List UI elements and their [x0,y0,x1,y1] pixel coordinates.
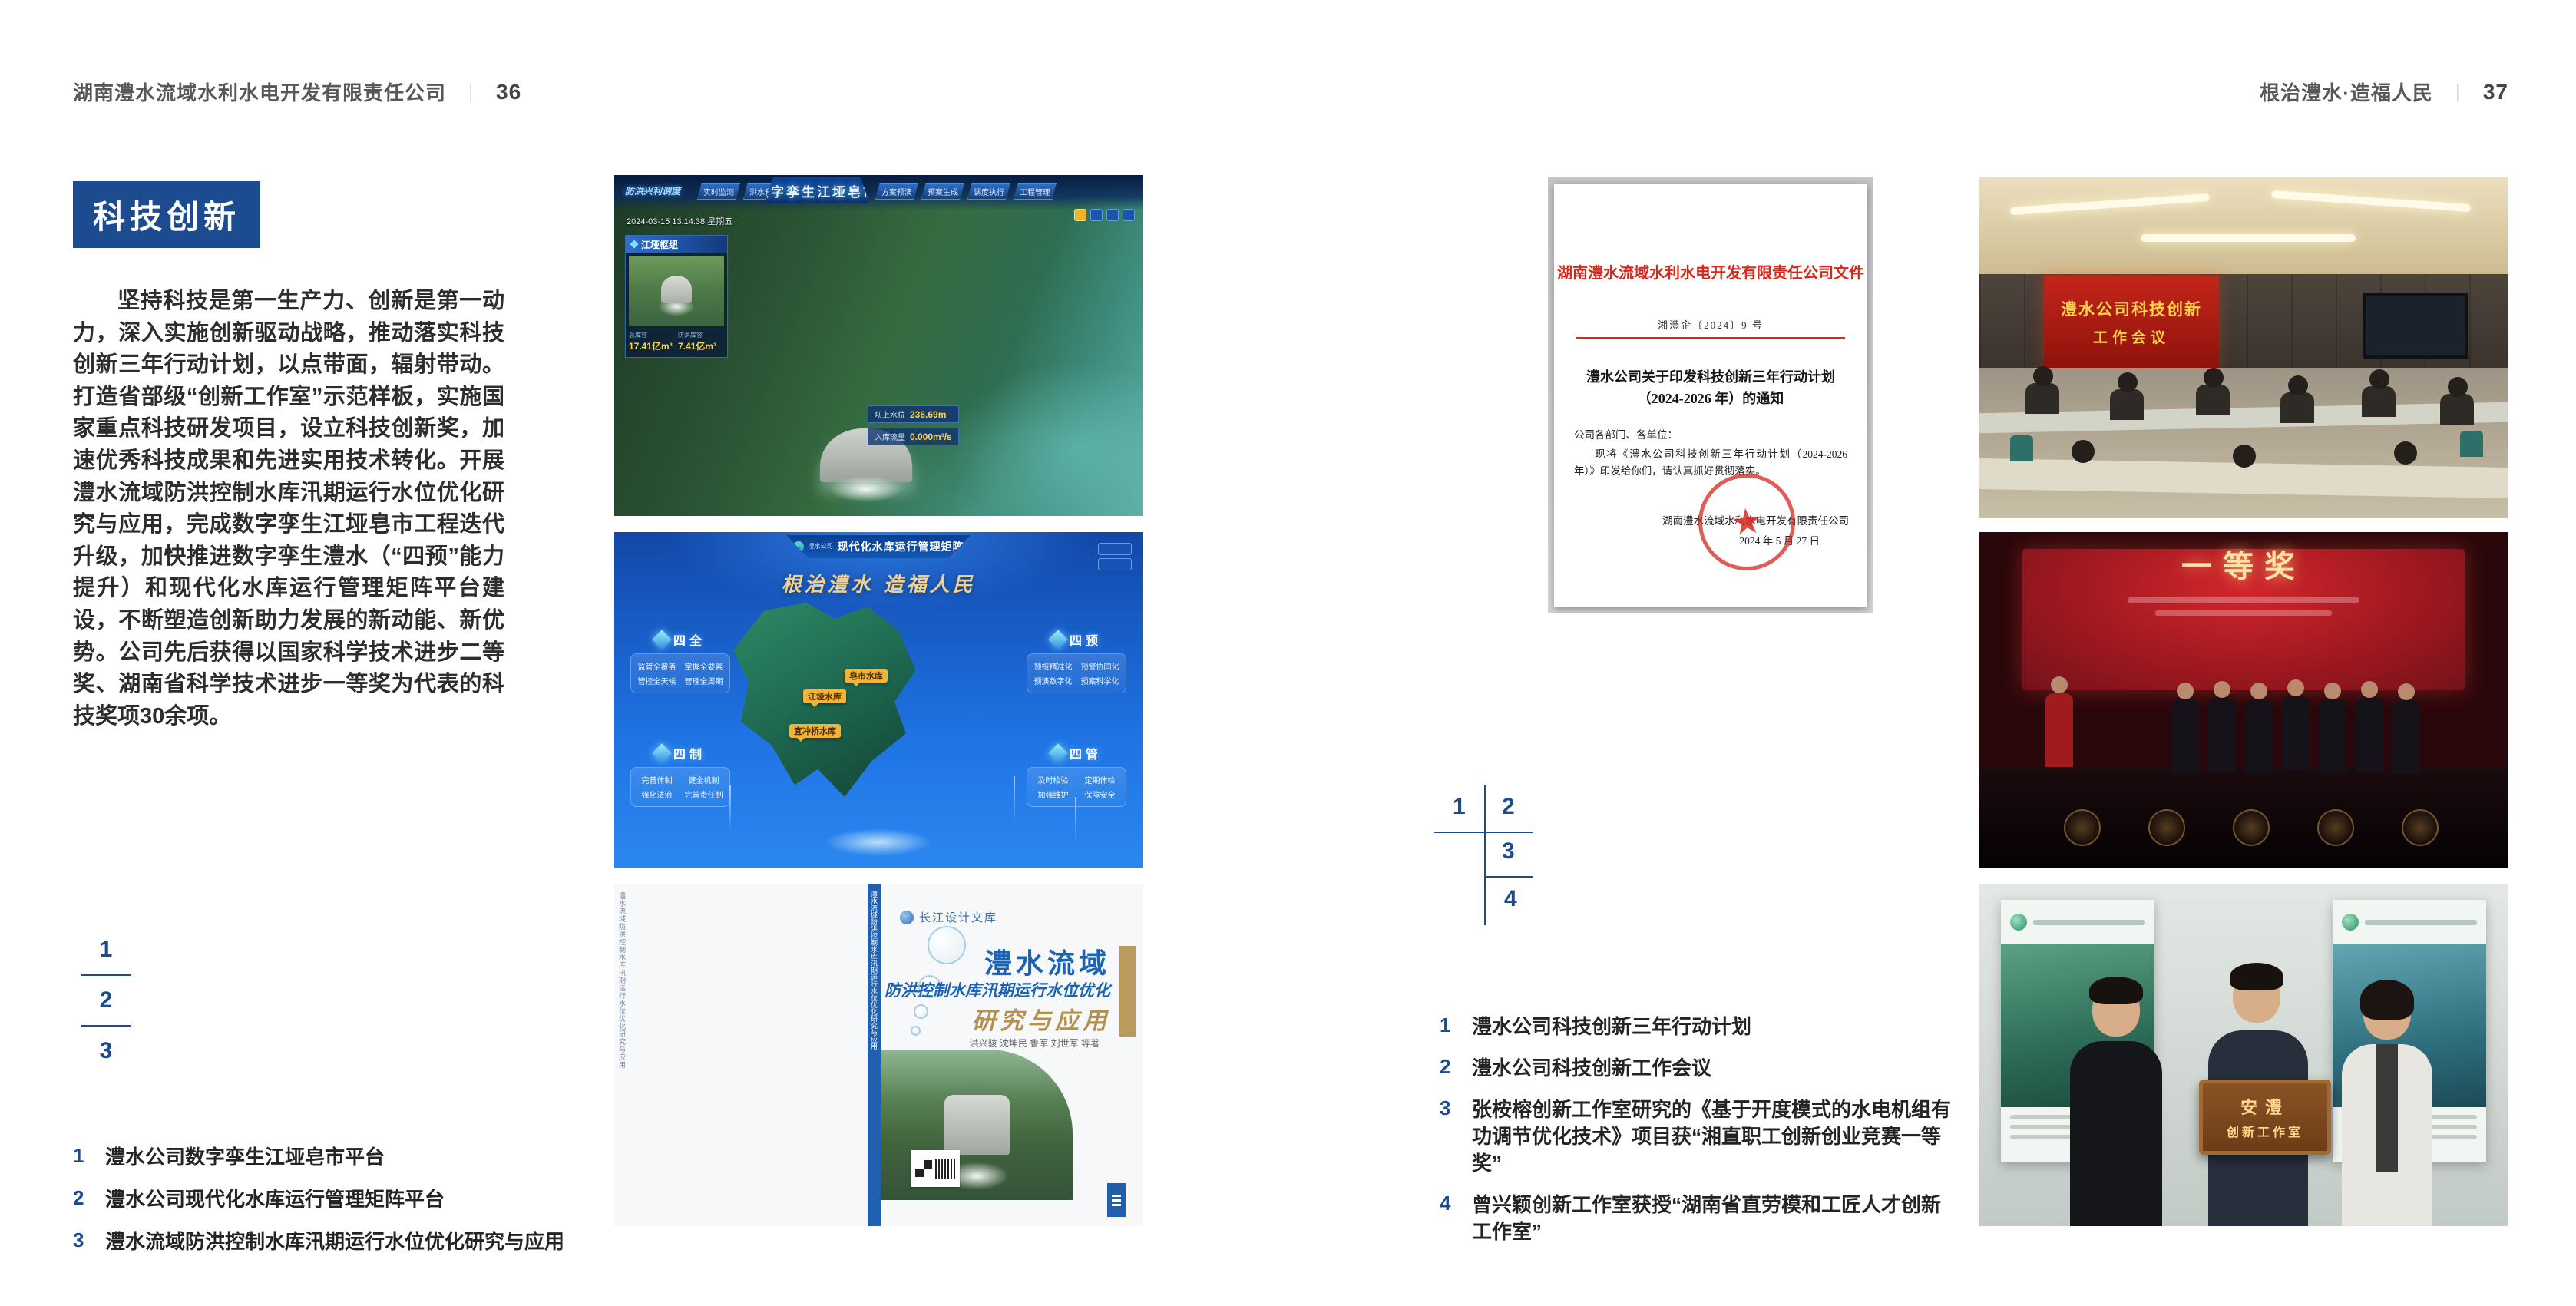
figure-index-left: 1 2 3 [73,937,139,1064]
stat-label: 防洪库容 [678,331,724,339]
panel-item: 定期体检 [1077,774,1123,785]
star-icon: ★ [1729,503,1764,541]
attendee-silhouette [2025,383,2059,414]
panel-item: 掌握全要素 [681,660,726,672]
panel-item: 预演数字化 [1030,675,1076,686]
panel-item: 保障安全 [1077,789,1123,800]
attendee-head [2448,377,2468,397]
motto: 根治澧水·造福人民 [2260,78,2433,106]
index-divider-line [81,1025,131,1027]
person-head [2363,986,2411,1040]
chip-value: 236.69m [910,409,946,420]
figure-index-number: 3 [1502,838,1515,865]
barcode [911,1150,960,1187]
dam-thumbnail [629,256,724,326]
caption-text: 澧水公司科技创新工作会议 [1472,1055,1953,1082]
document-body: 现将《澧水公司科技创新三年行动计划（2024-2026 年）》印发给你们，请认真… [1574,446,1847,480]
backdrop-text-bar [2128,597,2359,603]
figure-index-right: 1 2 3 4 [1434,785,1536,927]
dashboard-title-plate: 数字孪生江垭皂市 [765,177,869,203]
matrix-panel-siquan: 四全 监管全覆盖 掌握全要素 管控全天候 管理全周期 [634,630,726,693]
stat-chip: 入库流量 0.000m³/s [868,428,959,445]
awardee-silhouette [2208,698,2236,772]
diamond-icon [630,240,638,248]
caption-number: 4 [1440,1192,1472,1245]
locate-icon [1106,209,1119,221]
stat-cell: 防洪库容 7.41亿m³ [678,331,724,352]
dashboard-tab: 调度执行 [967,183,1010,200]
figure-matrix-platform: 江垭水库 皂市水库 宜冲桥水库 澧水公司 现代化水库运行管理矩阵 根治澧水 造福… [614,532,1143,868]
dam-cover-photo [881,1050,1073,1200]
spine-title: 澧水流域防洪控制水库汛期运行水位优化研究与应用 [869,891,879,1213]
dam-wall-shape [661,276,692,303]
document-letterhead: 湖南澧水流域水利水电开发有限责任公司文件 [1554,260,1867,283]
page-header-right: 根治澧水·造福人民 ｜ 37 [2260,78,2508,106]
dashboard-title: 数字孪生江垭皂市 [756,181,878,200]
figure-index-number: 2 [100,987,113,1013]
panel-item: 预报精准化 [1030,660,1076,672]
notice-title-line1: 澧水公司关于印发科技创新三年行动计划 [1554,366,1867,386]
page-number-left: 36 [496,80,521,104]
figure-award-ceremony-photo: 一等奖 [1979,532,2508,868]
body-paragraph: 坚持科技是第一生产力、创新是第一动力，深入实施创新驱动战略，推动落实科技创新三年… [73,286,504,732]
figure-index-number: 4 [1504,886,1517,912]
caption-item: 2 澧水公司科技创新工作会议 [1440,1055,1953,1082]
document-page: 湖南澧水流域水利水电开发有限责任公司文件 湘澧企〔2024〕9 号 澧水公司关于… [1554,184,1867,607]
qr-code-icon [915,1160,932,1177]
dashboard-timestamp: 2024-03-15 13:14:38 星期五 [627,215,732,227]
awardee-silhouette [2356,698,2383,772]
stat-label: 总库容 [629,331,675,339]
stage-light [2233,809,2270,846]
screen-text-line1: 澧水公司科技创新 [2061,297,2202,320]
screen-text-line2: 工作会议 [2093,326,2170,347]
notice-title-line2: （2024-2026 年）的通知 [1554,388,1867,408]
book-title-region: 澧水流域 [883,941,1110,981]
caption-item: 2 澧水公司现代化水库运行管理矩阵平台 [73,1186,568,1213]
chip-label: 入库流量 [875,431,905,442]
publisher-logo-icon [900,911,914,924]
ripple-glow [825,828,932,856]
red-rule [1576,337,1846,339]
header-divider: ｜ [2449,78,2468,105]
library-logo-row: 长江设计文库 [900,909,997,925]
caption-text: 澧水流域防洪控制水库汛期运行水位优化研究与应用 [105,1228,568,1255]
library-name: 长江设计文库 [919,909,997,925]
light-pillar [1014,776,1015,822]
side-display [2363,293,2468,359]
panel-title: 四制 [673,744,706,762]
poster-logo-icon [2010,914,2027,931]
diamond-icon [1048,630,1067,649]
brochure-spread: 湖南澧水流域水利水电开发有限责任公司 ｜ 36 根治澧水·造福人民 ｜ 37 科… [0,0,2576,1306]
salutation: 公司各部门、各单位： [1574,426,1678,441]
panel-title: 四预 [1070,630,1102,649]
book-title-main: 研究与应用 [883,1001,1110,1036]
caption-item: 3 张桉榕创新工作室研究的《基于开度模式的水电机组有功调节优化技术》项目获“湘直… [1440,1096,1953,1177]
attendee-head [2394,441,2417,465]
caption-text: 澧水公司科技创新三年行动计划 [1472,1013,1953,1040]
stat-value: 17.41亿m³ [629,339,675,352]
attendee-silhouette [2110,389,2144,420]
caption-text: 澧水公司现代化水库运行管理矩阵平台 [105,1186,568,1213]
attendee-silhouette [2362,386,2396,417]
caption-item: 1 澧水公司科技创新三年行动计划 [1440,1013,1953,1040]
panel-item: 完善责任制 [681,789,726,800]
panel-item: 管控全天候 [634,675,680,686]
caption-text: 张桉榕创新工作室研究的《基于开度模式的水电机组有功调节优化技术》项目获“湘直职工… [1472,1096,1953,1177]
figure-digital-twin-dashboard: 防洪兴利调度 实时监测 洪水预报 防洪预警 数字孪生江垭皂市 方案预演 预案生成… [614,175,1143,516]
caption-item: 4 曾兴颖创新工作室获授“湖南省直劳模和工匠人才创新工作室” [1440,1192,1953,1245]
header-divider: ｜ [461,78,481,105]
panel-header: 江垭枢纽 [626,236,727,253]
dashboard-tabs-right: 方案预演 预案生成 调度执行 工程管理 [875,183,1057,200]
map-label-reservoir: 宜冲桥水库 [789,724,841,738]
attendee-head [2072,440,2095,463]
host-silhouette [2045,693,2073,767]
section-title-badge: 科技创新 [73,181,260,248]
layers-icon [1090,209,1103,221]
awardee-silhouette [2245,699,2273,773]
backdrop-text-bar [2155,610,2332,616]
award-banner-text: 一等奖 [1979,541,2508,586]
dashboard-mode-label: 防洪兴利调度 [625,184,680,197]
page-header-left: 湖南澧水流域水利水电开发有限责任公司 ｜ 36 [73,78,521,106]
awardee-silhouette [2319,699,2346,773]
barcode-stripes [935,1159,955,1179]
dashboard-side-panel: 江垭枢纽 总库容 17.41亿m³ 防洪库容 7.41亿m³ [625,235,728,358]
back-cover-vertical-text: 澧水流域防洪控制水库汛期运行水位优化研究与应用 [617,892,627,1146]
stage-light [2148,809,2185,846]
caption-item: 1 澧水公司数字孪生江垭皂市平台 [73,1144,568,1171]
attendee-head [2233,445,2256,468]
caption-number: 2 [73,1186,105,1213]
index-vertical-line [1484,785,1486,925]
company-name: 湖南澧水流域水利水电开发有限责任公司 [73,78,446,106]
attendee-head [2288,375,2308,395]
publisher-colophon [1107,1183,1126,1217]
gold-accent-bar [1119,946,1136,1037]
dashboard-tab: 工程管理 [1014,183,1057,200]
attendee-silhouette [2440,394,2474,425]
matrix-panel-siyu: 四预 预报精准化 预警协同化 预演数字化 预案科学化 [1030,630,1123,693]
plaque-text-line1: 安澧 [2240,1094,2290,1119]
official-red-stamp: ★ [1694,469,1800,575]
page-number-right: 37 [2483,80,2508,104]
panel-title: 四全 [673,630,706,649]
stat-cell: 总库容 17.41亿m³ [629,331,675,352]
chair [2010,435,2033,461]
figure-index-number: 2 [1502,794,1515,820]
dashboard-tab: 实时监测 [697,183,740,200]
stage-light [2402,809,2439,846]
figure-book-cover: 澧水流域防洪控制水库汛期运行水位优化研究与应用 澧水流域防洪控制水库汛期运行水位… [614,884,1143,1226]
projection-screen: 澧水公司科技创新 工作会议 [2044,276,2219,368]
attendee-silhouette [2196,385,2230,415]
dashboard-tab: 预案生成 [921,183,964,200]
caption-number: 2 [1440,1055,1472,1082]
company-logo-icon [793,541,804,552]
stage-light [2317,809,2354,846]
slogan-calligraphy: 根治澧水 造福人民 [614,569,1143,597]
map-label-reservoir: 皂市水库 [845,669,888,683]
poster-title-bar [2033,920,2145,925]
dashboard-icon-cluster [1074,209,1135,221]
panel-item: 监管全覆盖 [634,660,680,672]
panel-item: 强化法治 [634,789,680,800]
header-button [1098,543,1132,555]
panel-item: 预案科学化 [1077,675,1123,686]
person-silhouette-left [2070,1041,2162,1226]
figure-meeting-photo: 澧水公司科技创新 工作会议 [1979,177,2508,518]
person-head [2233,969,2280,1023]
dam-spray [829,476,903,502]
caption-number: 3 [73,1228,105,1255]
innovation-workshop-plaque: 安澧 创新工作室 [2199,1080,2331,1155]
figure-index-number: 1 [100,937,113,963]
ceiling-light [2141,234,2356,242]
figure-index-number: 1 [1453,794,1466,820]
diamond-icon [1048,743,1067,762]
caption-number: 1 [73,1144,105,1171]
chair [2460,431,2483,457]
caption-number: 3 [1440,1096,1472,1177]
dashboard-tab: 方案预演 [875,183,918,200]
document-number: 湘澧企〔2024〕9 号 [1554,317,1867,332]
diamond-icon [652,743,671,762]
panel-stats: 总库容 17.41亿m³ 防洪库容 7.41亿m³ [626,329,727,357]
awardee-silhouette [2282,696,2310,770]
attendee-head [2204,368,2224,388]
attendee-head [2033,366,2053,386]
index-horizontal-line [1484,876,1533,878]
matrix-header: 澧水公司 现代化水库运行管理矩阵 [786,535,971,558]
figure-index-number: 3 [100,1038,113,1064]
panel-item: 及时检验 [1030,774,1076,785]
dam-wall-shape [944,1095,1010,1155]
person-head [2092,983,2140,1037]
index-horizontal-line [1434,832,1533,833]
book-spine: 澧水流域防洪控制水库汛期运行水位优化研究与应用 [868,884,881,1226]
awardee-silhouette [2392,700,2420,774]
panel-item: 加强维护 [1030,789,1076,800]
chip-label: 坝上水位 [875,408,905,420]
panel-item: 健全机制 [681,774,726,785]
index-divider-line [81,974,131,976]
caption-text: 澧水公司数字孪生江垭皂市平台 [105,1144,568,1171]
panel-item: 预警协同化 [1077,660,1123,672]
user-icon [1074,209,1086,221]
person-silhouette-right [2342,1044,2432,1226]
caption-list-right: 1 澧水公司科技创新三年行动计划 2 澧水公司科技创新工作会议 3 张桉榕创新工… [1440,1013,1953,1245]
app-title: 现代化水库运行管理矩阵 [838,539,964,554]
stage-light [2064,809,2101,846]
book-authors: 洪兴骏 沈坤民 鲁军 刘世军 等著 [883,1037,1100,1050]
panel-item: 管理全周期 [681,675,726,686]
brand-label: 澧水公司 [809,544,833,550]
water-level-chips: 坝上水位 236.69m 入库流量 0.000m³/s [868,405,959,445]
poster-logo-icon [2342,914,2359,931]
matrix-panel-siguan: 四管 及时检验 定期体检 加强维护 保障安全 [1030,744,1123,807]
alert-icon [1123,209,1135,221]
awardee-silhouette [2171,699,2199,773]
book-title-sub: 防洪控制水库汛期运行水位优化 [883,978,1110,1001]
matrix-panel-sizhi: 四制 完善体制 健全机制 强化法治 完善责任制 [634,744,726,807]
caption-item: 3 澧水流域防洪控制水库汛期运行水位优化研究与应用 [73,1228,568,1255]
plaque-text-line2: 创新工作室 [2227,1122,2303,1140]
caption-list-left: 1 澧水公司数字孪生江垭皂市平台 2 澧水公司现代化水库运行管理矩阵平台 3 澧… [73,1144,568,1255]
poster-title-bar [2365,920,2477,925]
panel-item: 完善体制 [634,774,680,785]
attendee-head [2118,372,2138,392]
chip-value: 0.000m³/s [910,431,952,442]
map-label-reservoir: 江垭水库 [803,689,846,703]
panel-title: 四管 [1070,744,1102,762]
attendee-silhouette [2280,392,2314,423]
attendee-head [2369,369,2389,389]
panel-title: 江垭枢纽 [641,238,678,251]
stat-value: 7.41亿m³ [678,339,724,352]
caption-text: 曾兴颖创新工作室获授“湖南省直劳模和工匠人才创新工作室” [1472,1192,1953,1245]
figure-official-document: 湖南澧水流域水利水电开发有限责任公司文件 湘澧企〔2024〕9 号 澧水公司关于… [1548,177,1873,613]
caption-number: 1 [1440,1013,1472,1040]
ceiling [1979,177,2508,276]
stat-chip: 坝上水位 236.69m [868,405,959,423]
diamond-icon [652,630,671,649]
figure-plaque-group-photo: 安澧 创新工作室 [1979,884,2508,1226]
